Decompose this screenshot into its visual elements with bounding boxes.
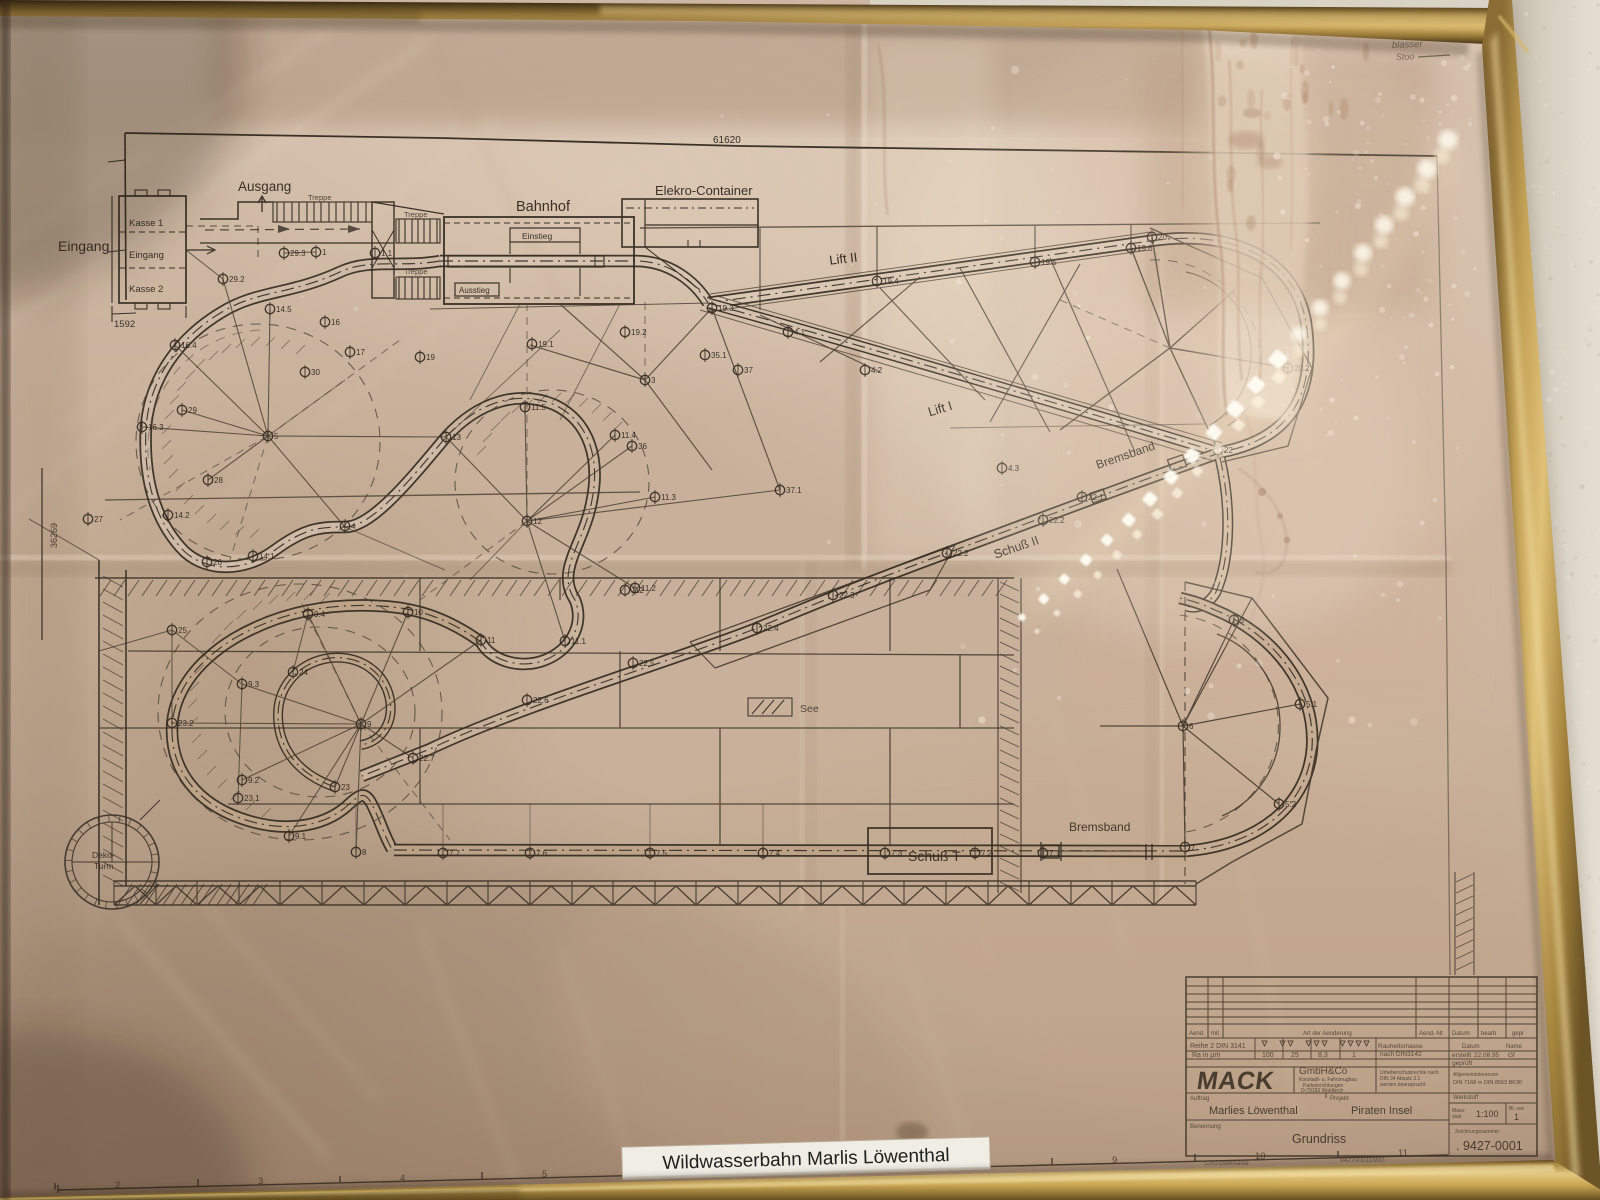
svg-text:6: 6 bbox=[1189, 722, 1194, 731]
svg-text:19.1: 19.1 bbox=[538, 340, 554, 349]
svg-text:D-79183 Waldkirch: D-79183 Waldkirch bbox=[1301, 1088, 1344, 1094]
svg-text:Gf: Gf bbox=[1508, 1052, 1515, 1059]
svg-text:DIN 7168 m DIN 8563 BK30: DIN 7168 m DIN 8563 BK30 bbox=[1453, 1080, 1522, 1086]
svg-text:7.4: 7.4 bbox=[769, 849, 781, 858]
svg-text:Schuß T: Schuß T bbox=[908, 848, 961, 864]
svg-text:22.7: 22.7 bbox=[419, 754, 435, 763]
svg-text:9: 9 bbox=[367, 720, 372, 729]
svg-text:1:100: 1:100 bbox=[1476, 1109, 1499, 1119]
svg-text:11.3: 11.3 bbox=[661, 493, 677, 502]
svg-text:19: 19 bbox=[426, 353, 435, 362]
svg-text:27: 27 bbox=[94, 515, 103, 524]
svg-text:22.3: 22.3 bbox=[839, 591, 855, 600]
svg-text:5.1: 5.1 bbox=[1306, 700, 1318, 709]
svg-text:Bahnhof: Bahnhof bbox=[516, 199, 571, 215]
svg-text:Projekt: Projekt bbox=[1330, 1096, 1349, 1102]
svg-text:7.7: 7.7 bbox=[449, 849, 461, 858]
svg-text:geprüft: geprüft bbox=[1452, 1060, 1472, 1067]
svg-text:23.1: 23.1 bbox=[244, 794, 260, 803]
svg-text:28: 28 bbox=[214, 476, 223, 485]
svg-text:9: 9 bbox=[1112, 1155, 1117, 1166]
svg-text:Ausstieg: Ausstieg bbox=[459, 286, 490, 295]
svg-text:1592: 1592 bbox=[114, 319, 135, 330]
svg-text:7.6: 7.6 bbox=[536, 849, 548, 858]
svg-text:16.3: 16.3 bbox=[148, 423, 164, 432]
svg-text:Aend.: Aend. bbox=[1189, 1031, 1205, 1037]
svg-text:14.2: 14.2 bbox=[174, 511, 190, 520]
svg-text:See: See bbox=[800, 703, 819, 715]
svg-text:Ausgang: Ausgang bbox=[238, 179, 291, 194]
svg-text:11: 11 bbox=[487, 636, 496, 645]
svg-text:9.4: 9.4 bbox=[314, 610, 326, 619]
svg-text:mit: mit bbox=[1211, 1031, 1219, 1037]
svg-text:9.1: 9.1 bbox=[295, 832, 307, 841]
svg-text:24: 24 bbox=[299, 668, 308, 677]
svg-text:Rauheitsmasse: Rauheitsmasse bbox=[1378, 1043, 1423, 1050]
svg-text:7.3: 7.3 bbox=[891, 849, 903, 858]
svg-text:7.5: 7.5 bbox=[656, 849, 668, 858]
svg-text:100: 100 bbox=[1262, 1052, 1274, 1059]
svg-text:4: 4 bbox=[351, 522, 356, 531]
svg-text:Aend.-Nr: Aend.-Nr bbox=[1419, 1031, 1443, 1037]
svg-text:37.1: 37.1 bbox=[786, 486, 802, 495]
svg-text:29.2: 29.2 bbox=[229, 275, 245, 284]
svg-text:8: 8 bbox=[362, 848, 367, 857]
svg-text:Datum: Datum bbox=[1452, 1031, 1470, 1037]
svg-text:Einstieg: Einstieg bbox=[522, 231, 553, 241]
svg-text:5: 5 bbox=[274, 432, 279, 441]
svg-text:25: 25 bbox=[178, 626, 187, 635]
svg-text:4.1: 4.1 bbox=[794, 328, 806, 337]
svg-text:werden beansprucht: werden beansprucht bbox=[1380, 1082, 1426, 1088]
svg-text:26: 26 bbox=[213, 558, 222, 567]
svg-text:9.2: 9.2 bbox=[248, 776, 260, 785]
svg-text:Marlies Löwenthal: Marlies Löwenthal bbox=[1209, 1105, 1298, 1117]
svg-text:Treppe: Treppe bbox=[308, 193, 332, 202]
svg-text:5: 5 bbox=[542, 1169, 547, 1180]
svg-text:stab: stab bbox=[1452, 1114, 1462, 1120]
svg-text:Piraten Insel: Piraten Insel bbox=[1351, 1105, 1412, 1117]
svg-text:Allgemeintoleranzen: Allgemeintoleranzen bbox=[1453, 1072, 1499, 1078]
svg-text:112: 112 bbox=[631, 586, 644, 595]
svg-text:36: 36 bbox=[638, 442, 647, 451]
svg-text:Kasse 2: Kasse 2 bbox=[129, 284, 163, 295]
svg-text:22.5: 22.5 bbox=[639, 659, 655, 668]
svg-text:61620: 61620 bbox=[713, 135, 741, 146]
svg-text:Eingang: Eingang bbox=[129, 250, 164, 261]
svg-text:11.4: 11.4 bbox=[621, 431, 637, 440]
svg-text:30: 30 bbox=[311, 368, 320, 377]
svg-text:14.5: 14.5 bbox=[276, 305, 292, 314]
svg-text:erstellt: erstellt bbox=[1452, 1052, 1471, 1059]
svg-text:5.2: 5.2 bbox=[1285, 800, 1297, 809]
svg-text:22.08.95: 22.08.95 bbox=[1474, 1052, 1500, 1059]
svg-text:Reihe 2 DIN 3141: Reihe 2 DIN 3141 bbox=[1190, 1043, 1246, 1050]
svg-text:Treppe: Treppe bbox=[404, 267, 428, 276]
svg-text:22.6: 22.6 bbox=[533, 696, 549, 705]
svg-text:Werkstoff: Werkstoff bbox=[1453, 1095, 1478, 1101]
svg-text:Zeichnungsnummer: Zeichnungsnummer bbox=[1455, 1129, 1500, 1135]
svg-text:nach DIN3142: nach DIN3142 bbox=[1380, 1051, 1422, 1058]
svg-text:1: 1 bbox=[1352, 1052, 1356, 1059]
svg-text:1: 1 bbox=[322, 248, 327, 257]
svg-text:17: 17 bbox=[356, 348, 365, 357]
svg-text:37: 37 bbox=[744, 366, 753, 375]
svg-text:GmbH&Co: GmbH&Co bbox=[1299, 1066, 1348, 1077]
svg-text:Datum: Datum bbox=[1462, 1044, 1480, 1050]
svg-text:Auftrag: Auftrag bbox=[1190, 1096, 1209, 1102]
svg-text:19.2: 19.2 bbox=[631, 328, 647, 337]
svg-text:9.3: 9.3 bbox=[248, 680, 260, 689]
svg-text:1: 1 bbox=[1514, 1112, 1519, 1122]
svg-text:29: 29 bbox=[188, 406, 197, 415]
svg-text:7: 7 bbox=[1191, 843, 1196, 852]
svg-text:12: 12 bbox=[533, 517, 542, 526]
svg-text:14.1: 14.1 bbox=[259, 552, 275, 561]
svg-text:11.1: 11.1 bbox=[571, 637, 587, 646]
svg-text:Bremsband: Bremsband bbox=[1069, 820, 1130, 834]
svg-text:Elekro-Container: Elekro-Container bbox=[655, 183, 753, 198]
svg-text:Ra in μm: Ra in μm bbox=[1192, 1052, 1220, 1059]
svg-text:35.1: 35.1 bbox=[711, 351, 727, 360]
svg-text:MACK: MACK bbox=[1195, 1067, 1276, 1095]
svg-text:22.4: 22.4 bbox=[763, 624, 779, 633]
svg-text:7.1: 7.1 bbox=[1049, 849, 1061, 858]
svg-text:23: 23 bbox=[341, 783, 350, 792]
svg-text:Name: Name bbox=[1506, 1044, 1523, 1050]
svg-text:25: 25 bbox=[1291, 1052, 1299, 1059]
svg-text:29.3: 29.3 bbox=[290, 249, 306, 258]
svg-text:10: 10 bbox=[414, 608, 423, 617]
svg-text:4.2: 4.2 bbox=[871, 366, 883, 375]
svg-text:. 9427-0001: . 9427-0001 bbox=[1456, 1139, 1523, 1153]
svg-text:11: 11 bbox=[1398, 1148, 1408, 1159]
svg-text:Grundriss: Grundriss bbox=[1292, 1132, 1346, 1146]
svg-text:36269: 36269 bbox=[49, 523, 59, 548]
svg-text:gepr: gepr bbox=[1512, 1031, 1524, 1037]
svg-text:3: 3 bbox=[651, 376, 656, 385]
svg-text:Turm: Turm bbox=[94, 861, 114, 871]
svg-text:Treppe: Treppe bbox=[404, 210, 428, 219]
svg-text:1.1: 1.1 bbox=[381, 249, 393, 258]
svg-text:3: 3 bbox=[258, 1176, 263, 1187]
svg-text:11.5: 11.5 bbox=[531, 403, 547, 412]
svg-text:22.2: 22.2 bbox=[953, 549, 969, 558]
svg-text:16.4: 16.4 bbox=[181, 341, 197, 350]
svg-text:8,3: 8,3 bbox=[1318, 1052, 1328, 1059]
svg-text:Deko-: Deko- bbox=[92, 850, 115, 860]
svg-text:Art der Aenderung: Art der Aenderung bbox=[1303, 1031, 1352, 1037]
svg-text:bearb: bearb bbox=[1481, 1031, 1497, 1037]
svg-text:Benennung: Benennung bbox=[1190, 1124, 1221, 1130]
svg-text:19.3: 19.3 bbox=[718, 304, 734, 313]
svg-text:16: 16 bbox=[331, 318, 340, 327]
svg-text:13: 13 bbox=[452, 433, 461, 442]
svg-text:7.2: 7.2 bbox=[981, 849, 993, 858]
